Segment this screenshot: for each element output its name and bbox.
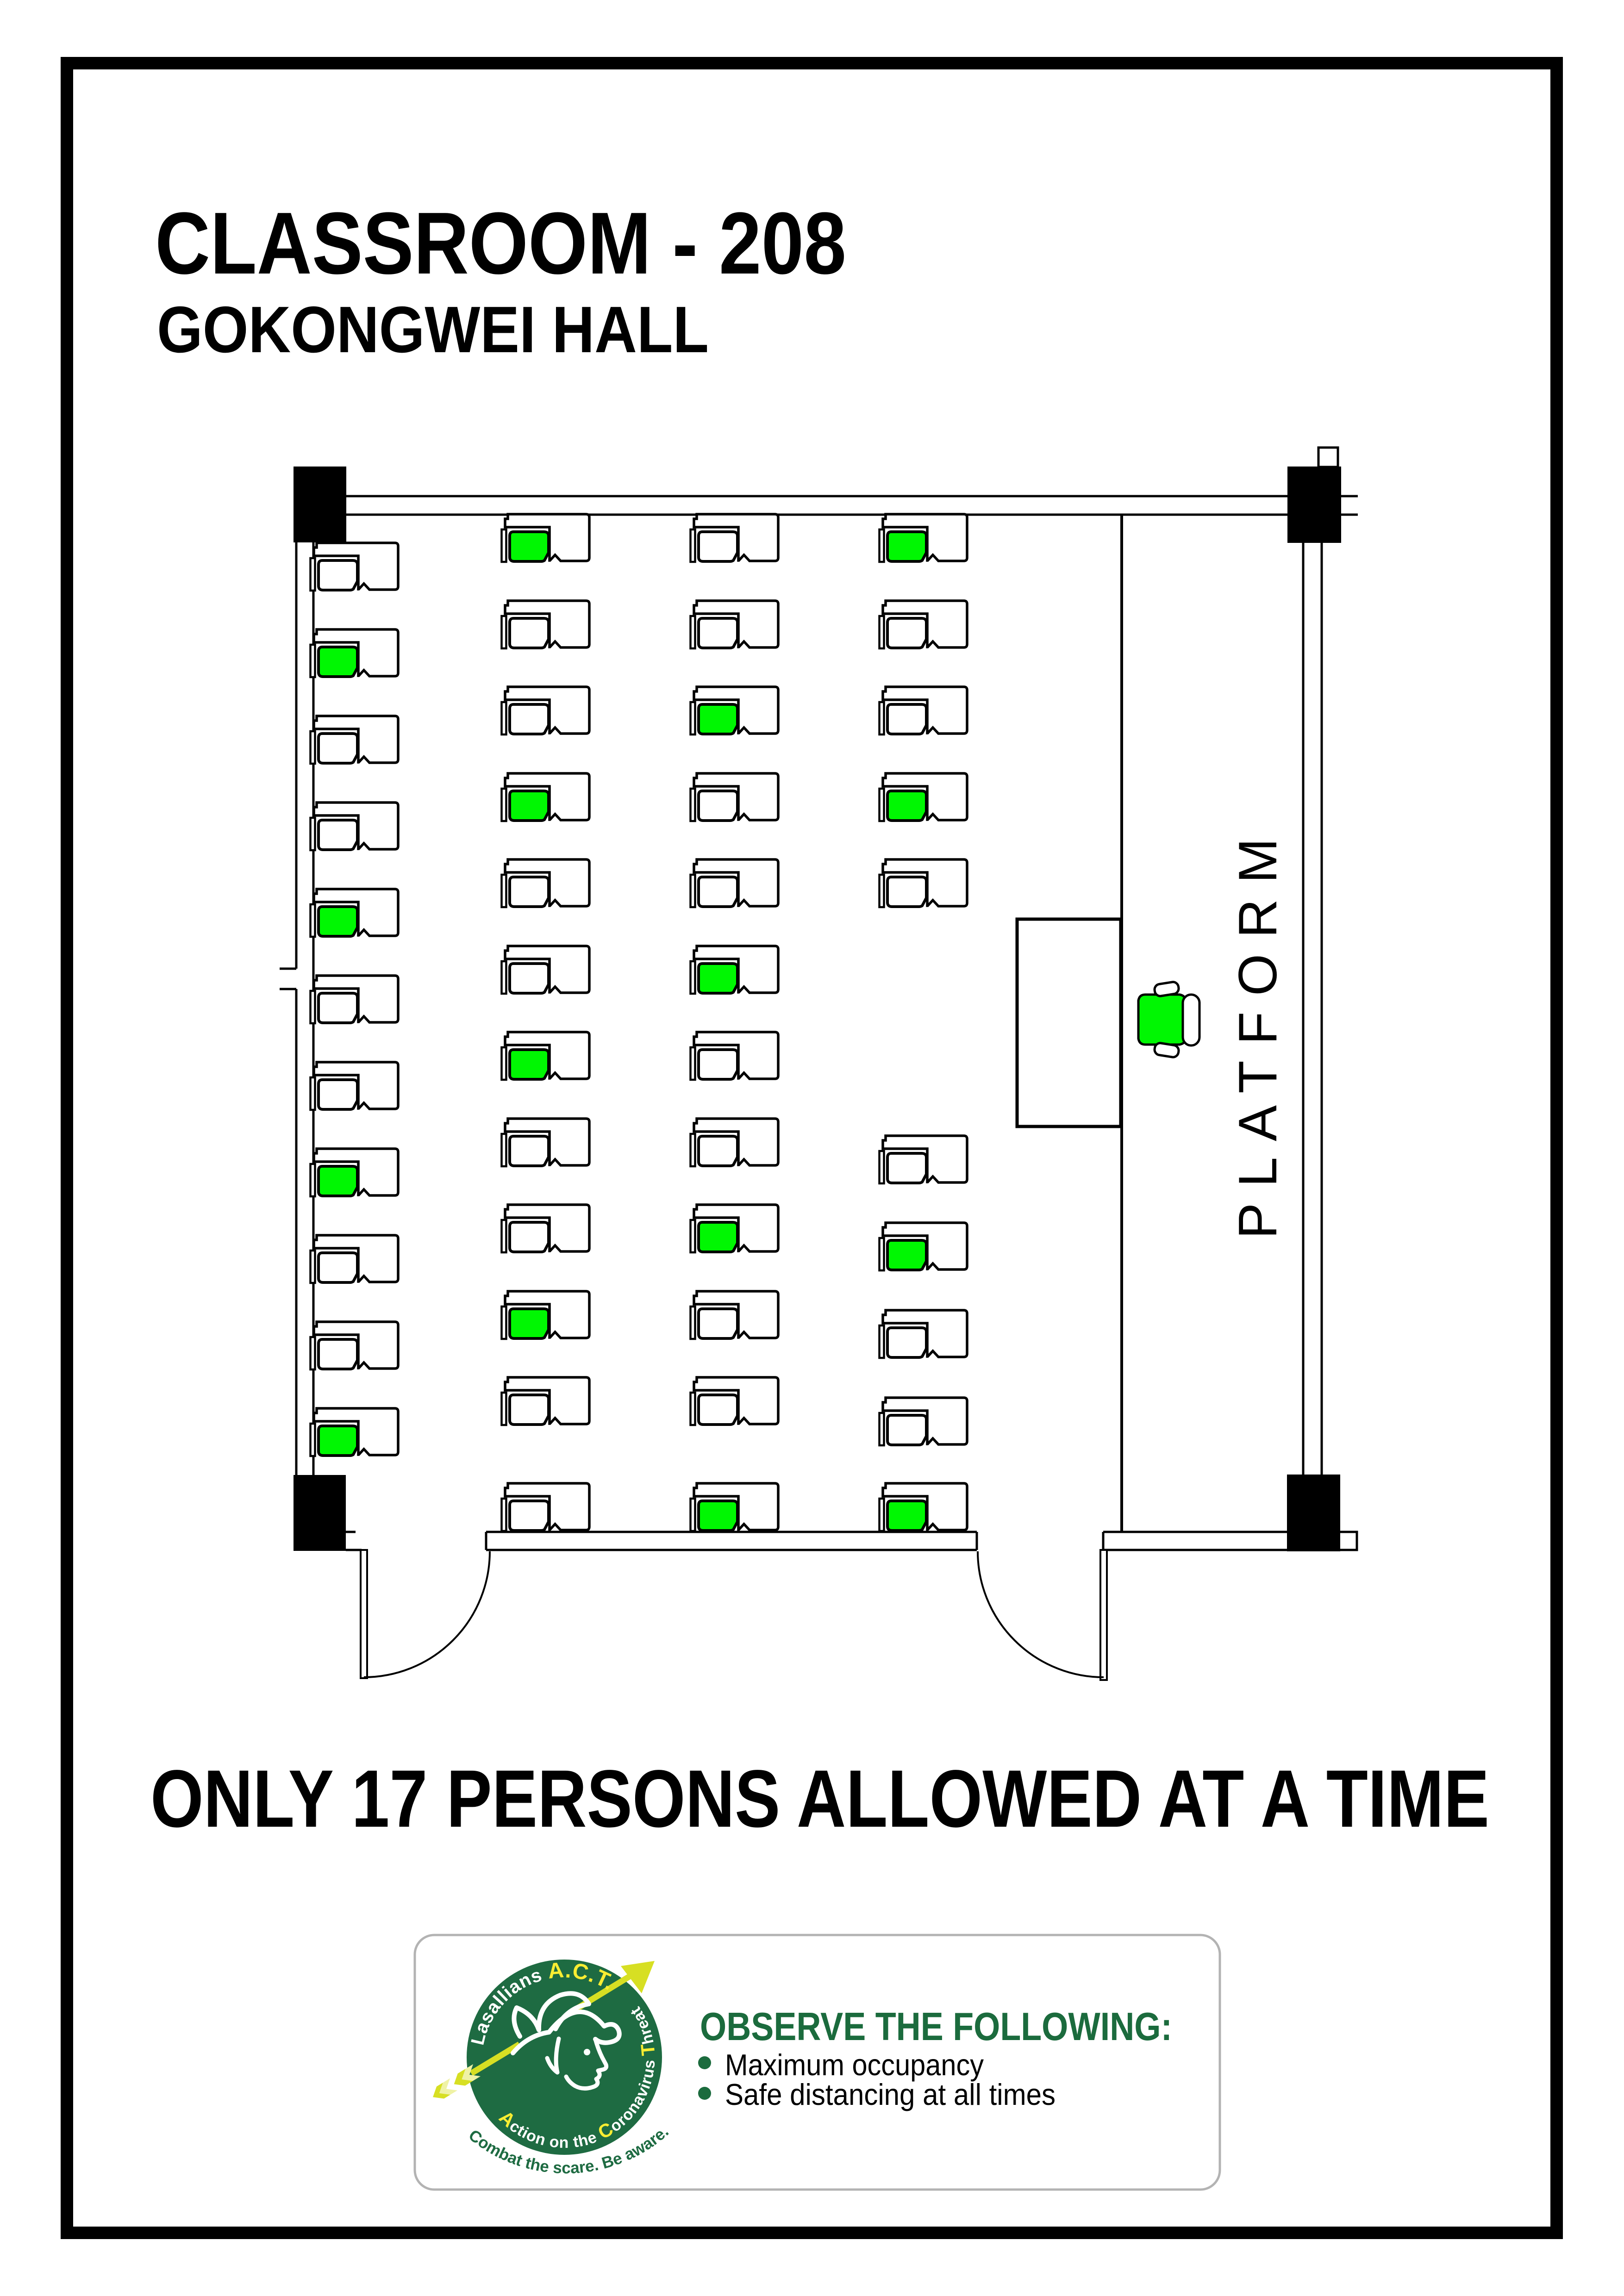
svg-text:ONLY 17 PERSONS ALLOWED AT A T: ONLY 17 PERSONS ALLOWED AT A TIME	[150, 1754, 1489, 1844]
svg-text:Safe distancing at all times: Safe distancing at all times	[725, 2078, 1056, 2111]
svg-text:Maximum occupancy: Maximum occupancy	[725, 2048, 984, 2082]
svg-text:CLASSROOM - 208: CLASSROOM - 208	[155, 194, 846, 292]
svg-text:OBSERVE THE FOLLOWING:: OBSERVE THE FOLLOWING:	[700, 2005, 1172, 2049]
svg-text:GOKONGWEI HALL: GOKONGWEI HALL	[157, 293, 709, 367]
